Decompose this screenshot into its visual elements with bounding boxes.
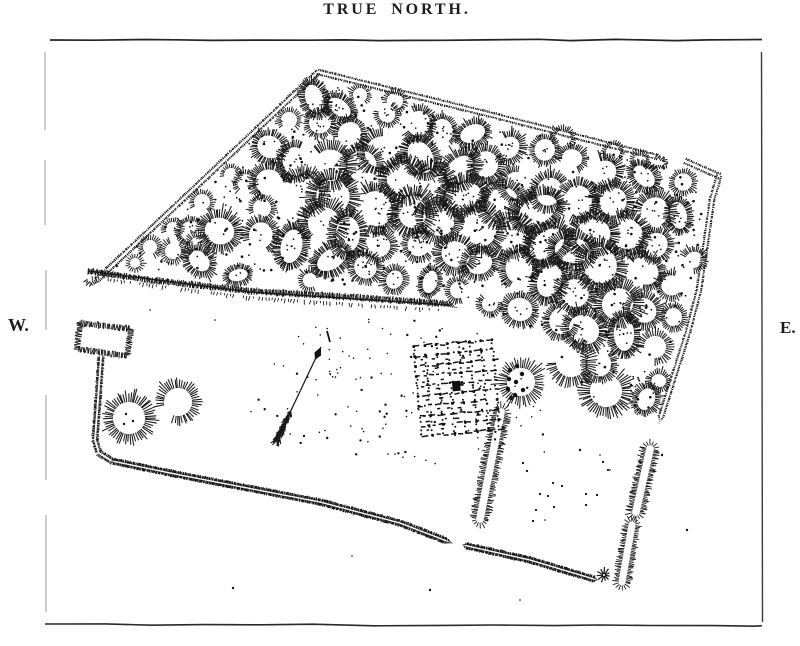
svg-text:E.: E.	[780, 318, 796, 337]
svg-text:W.: W.	[8, 315, 29, 335]
svg-text:TRUE NORTH.: TRUE NORTH.	[323, 1, 470, 18]
